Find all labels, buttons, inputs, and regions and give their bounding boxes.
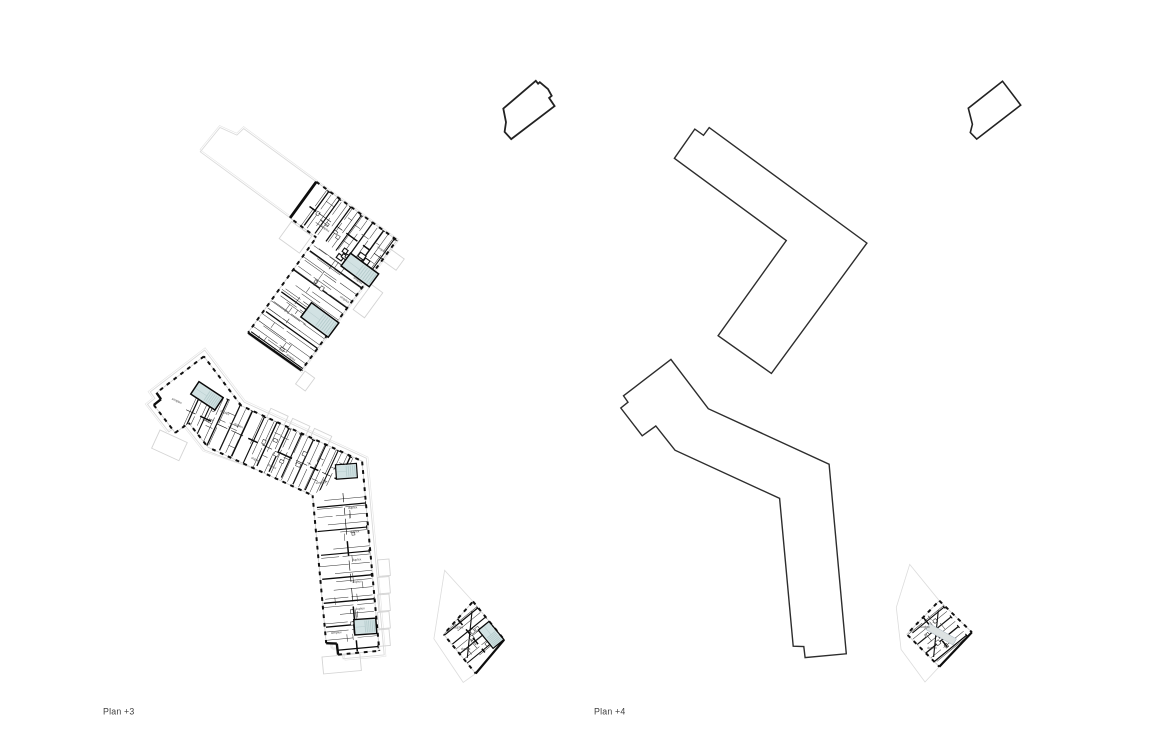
svg-text:duplex: duplex: [461, 647, 471, 651]
svg-text:Plan +4: Plan +4: [594, 707, 625, 717]
svg-text:duplex: duplex: [920, 625, 930, 629]
svg-text:duplex: duplex: [350, 529, 360, 534]
svg-text:Plan +3: Plan +3: [103, 707, 134, 717]
svg-text:duplex: duplex: [454, 626, 464, 630]
svg-text:duplex: duplex: [348, 505, 358, 510]
svg-text:duplex: duplex: [352, 557, 362, 562]
svg-text:duplex: duplex: [352, 579, 362, 584]
svg-text:duplex: duplex: [355, 606, 365, 611]
svg-text:duplex: duplex: [927, 646, 937, 650]
